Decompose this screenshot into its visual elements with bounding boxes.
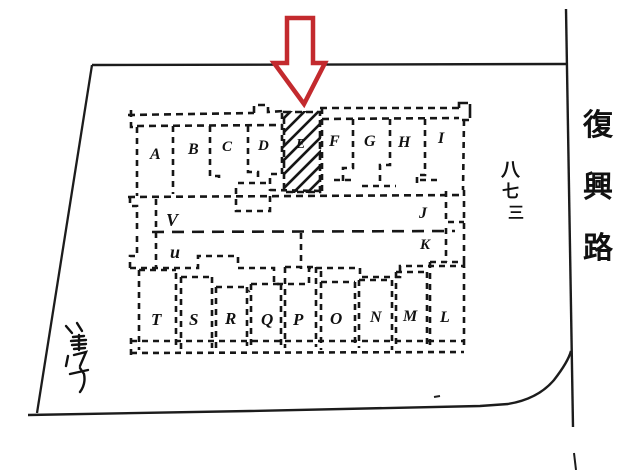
svg-text:u: u [170,242,180,262]
svg-text:B: B [187,141,199,158]
svg-text:O: O [330,309,342,328]
svg-text:S: S [189,310,198,329]
svg-text:N: N [369,309,383,326]
svg-text:復: 復 [582,109,614,142]
svg-text:V: V [166,210,180,230]
svg-text:C: C [222,139,233,155]
svg-text:K: K [419,237,431,253]
svg-text:M: M [402,308,418,325]
svg-text:P: P [292,310,304,329]
svg-text:路: 路 [583,232,614,265]
svg-text:G: G [364,133,376,150]
svg-text:E: E [295,137,305,152]
svg-text:三: 三 [508,205,524,222]
svg-text:F: F [328,133,340,150]
svg-text:興: 興 [583,171,613,204]
svg-text:D: D [257,138,269,154]
svg-text:八: 八 [501,160,521,181]
svg-text:H: H [397,134,411,151]
svg-text:Q: Q [261,310,273,329]
svg-text:A: A [149,146,161,163]
svg-text:L: L [439,309,450,326]
svg-text:R: R [224,309,236,328]
svg-text:T: T [151,310,162,329]
svg-text:J: J [418,205,428,222]
svg-text:七: 七 [502,182,519,201]
svg-text:I: I [437,130,445,147]
